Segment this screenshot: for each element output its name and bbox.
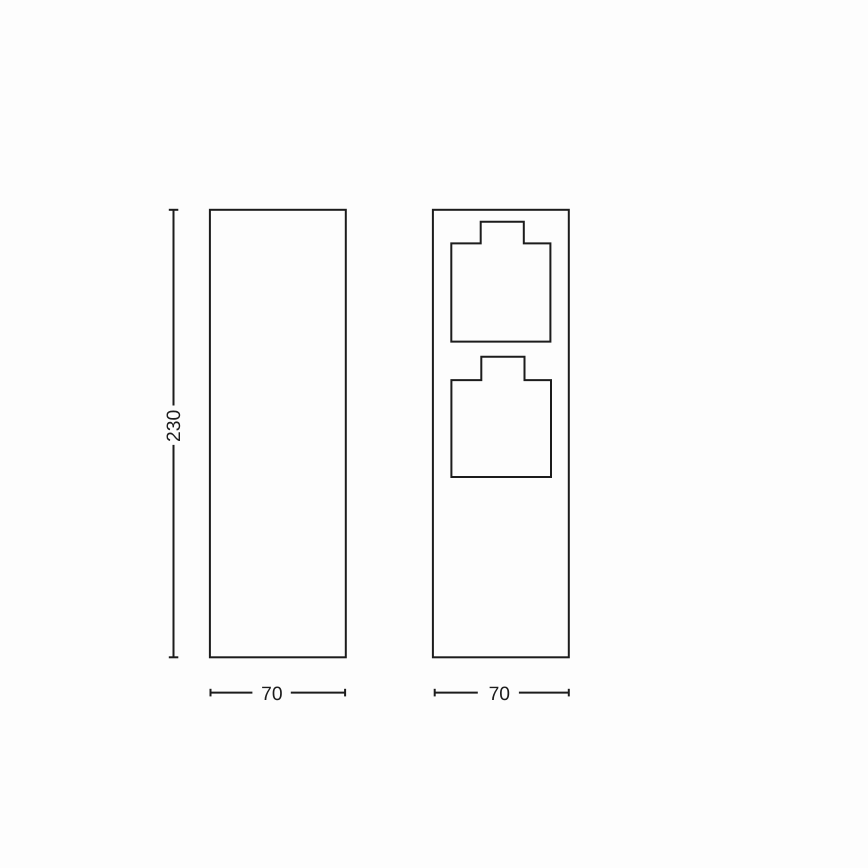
- svg-text:230: 230: [164, 410, 185, 442]
- svg-text:70: 70: [489, 684, 510, 705]
- svg-text:70: 70: [261, 684, 282, 705]
